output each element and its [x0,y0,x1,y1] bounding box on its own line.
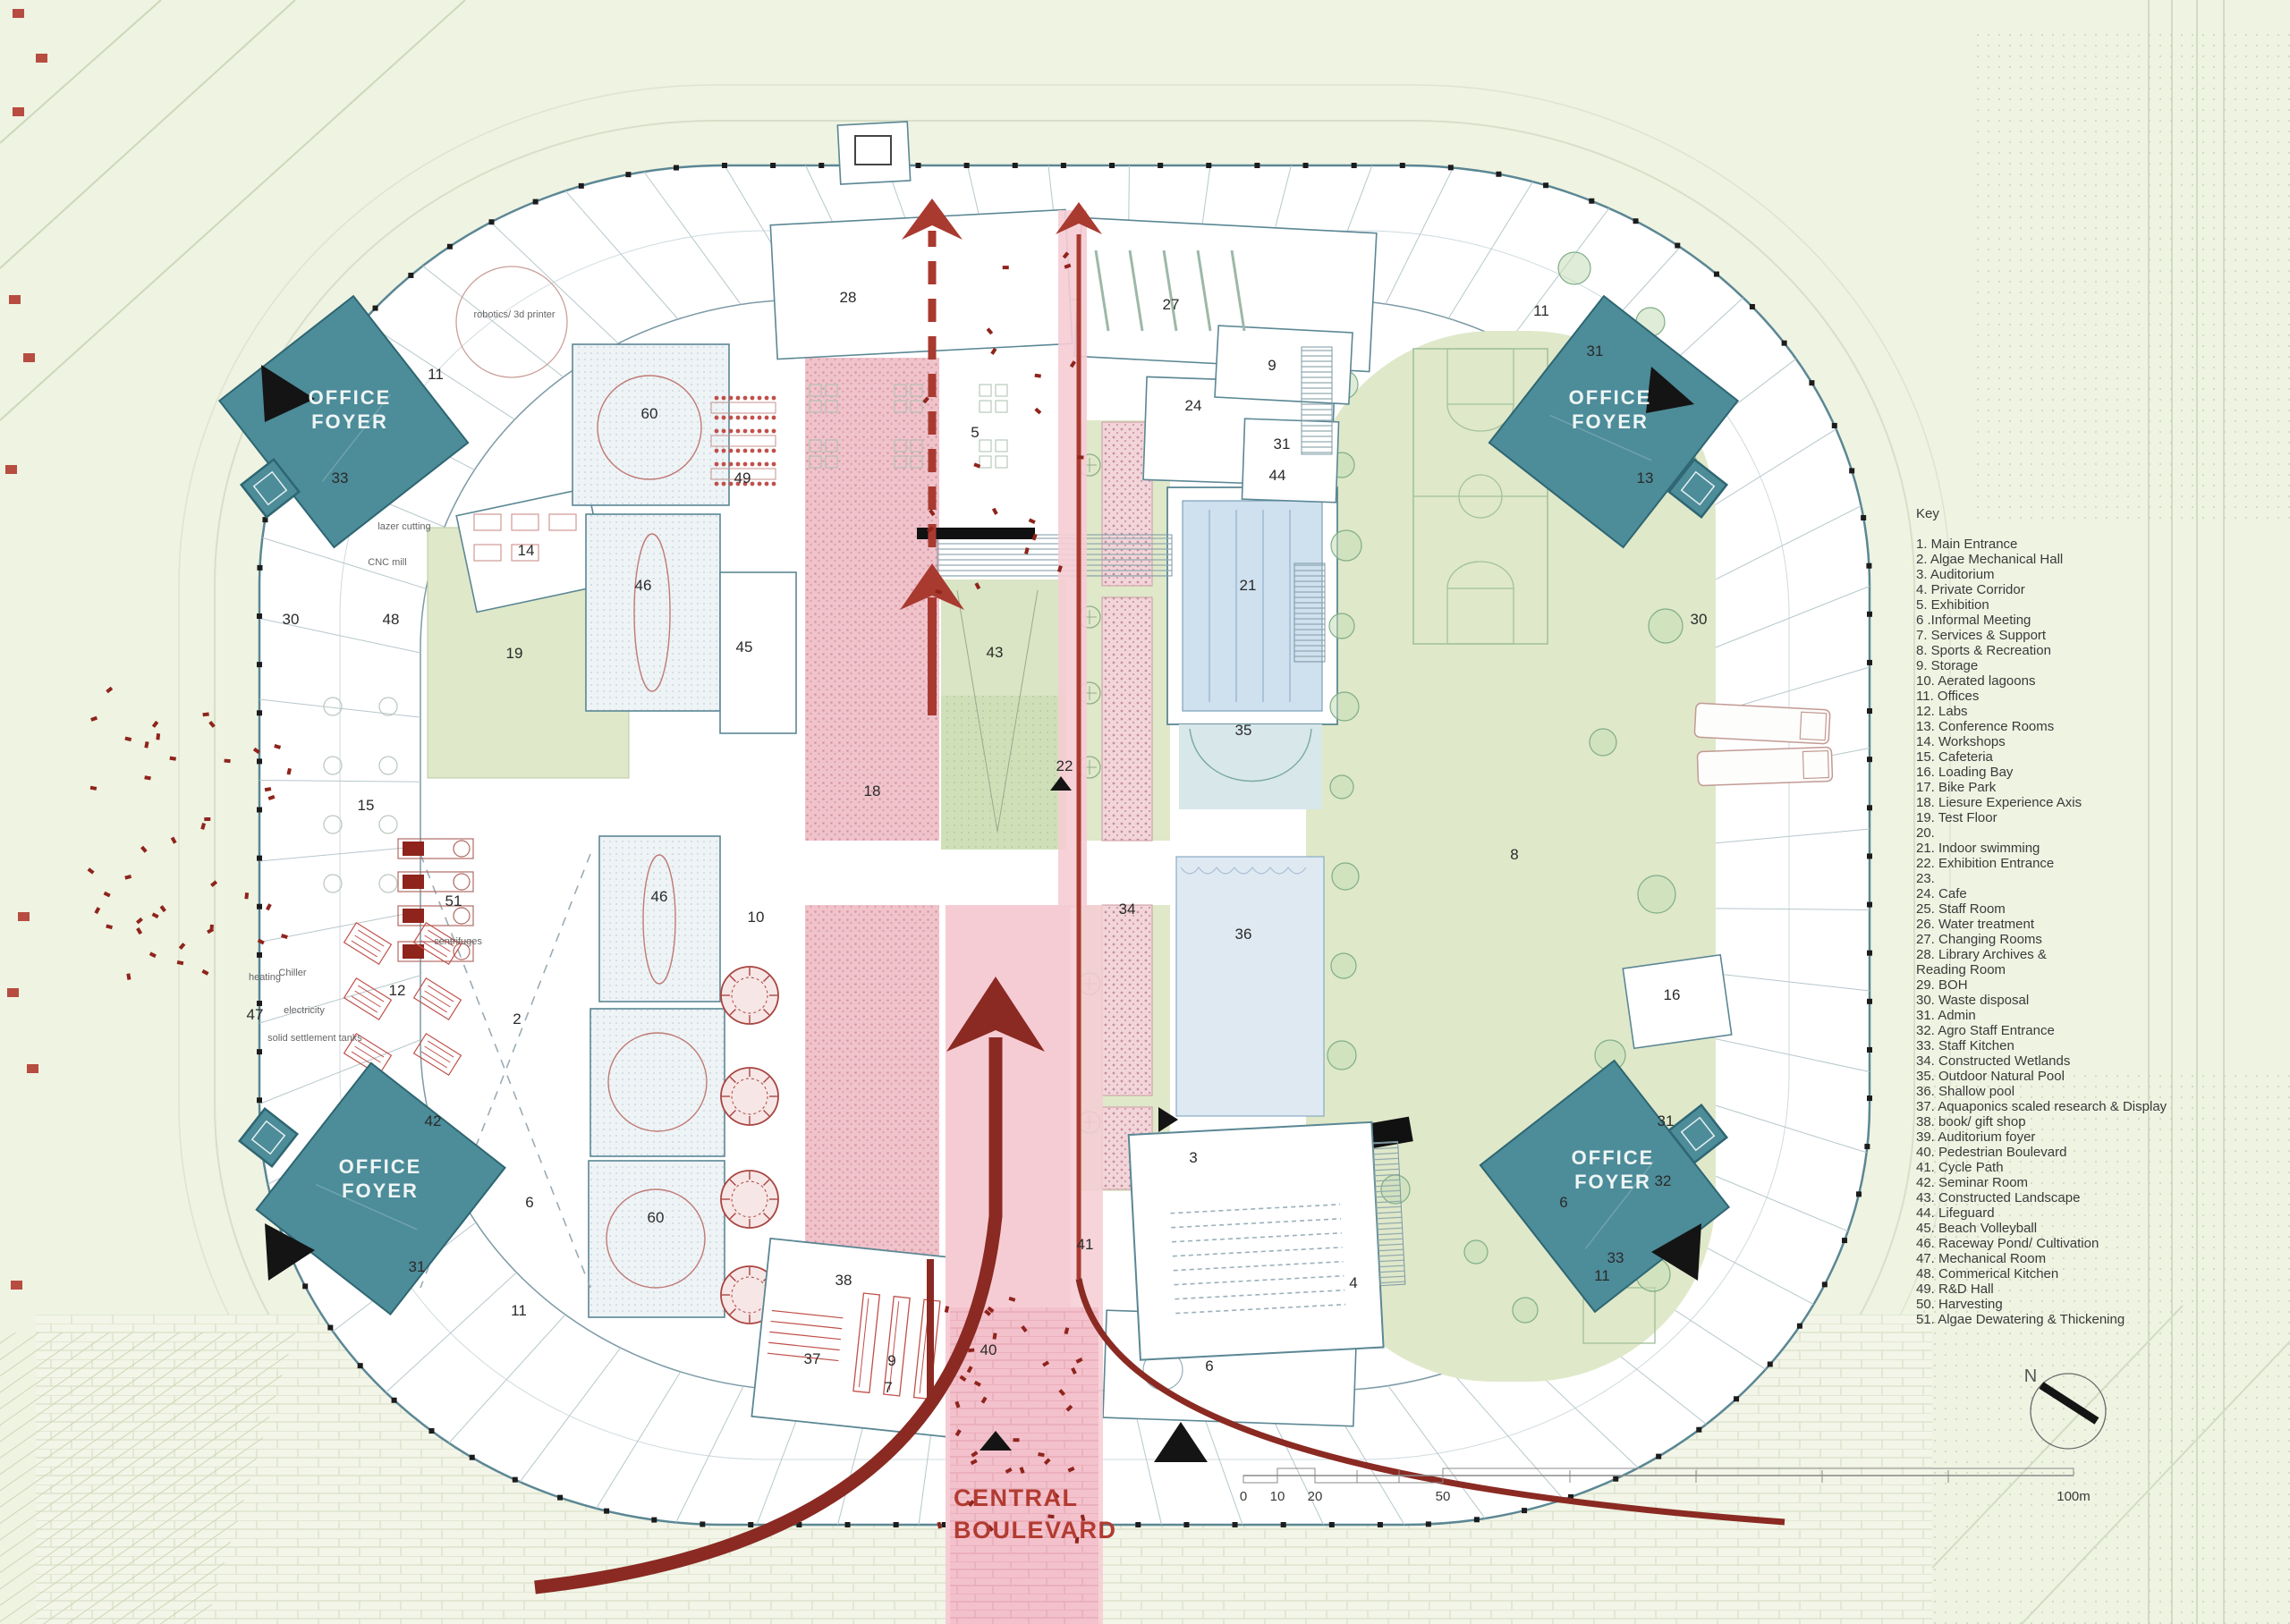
central-boulevard-label: BOULEVARD [954,1517,1117,1544]
plan-label: 16 [1664,986,1681,1003]
legend-item: 8. Sports & Recreation [1916,643,2220,658]
legend-item: 36. Shallow pool [1916,1084,2220,1099]
legend-item: 41. Cycle Path [1916,1160,2220,1175]
legend-item: 37. Aquaponics scaled research & Display [1916,1099,2220,1114]
plan-label: 31 [409,1258,426,1275]
scale-tick-label: 50 [1436,1489,1451,1504]
plan-label: 41 [1077,1236,1094,1253]
legend-item: 2. Algae Mechanical Hall [1916,552,2220,567]
plan-label: 10 [748,909,765,926]
scale-tick-label: 100m [2057,1489,2091,1504]
plan-label: CNC mill [368,557,406,568]
plan-label: 33 [1607,1249,1624,1266]
legend-item: 45. Beach Volleyball [1916,1221,2220,1236]
legend-item: 42. Seminar Room [1916,1175,2220,1190]
plan-label: 11 [511,1302,527,1319]
legend-item: 12. Labs [1916,704,2220,719]
legend-item: 48. Commerical Kitchen [1916,1266,2220,1281]
plan-label: 27 [1163,296,1180,313]
plan-label: 36 [1235,926,1252,943]
zone-landscape [941,579,1066,696]
legend-item: 35. Outdoor Natural Pool [1916,1069,2220,1084]
plan-label: 6 [1205,1358,1213,1374]
plan-label: 37 [804,1350,821,1367]
plan-label: 38 [835,1272,852,1289]
legend-item: 31. Admin [1916,1008,2220,1023]
office-foyer-label: FOYER [311,410,388,433]
legend-item: 34. Constructed Wetlands [1916,1053,2220,1069]
legend-list: 1. Main Entrance2. Algae Mechanical Hall… [1916,537,2220,1327]
north-label: N [2024,1366,2037,1386]
legend-item: 6 .Informal Meeting [1916,613,2220,628]
plan-label: 28 [840,289,857,306]
plan-label: 4 [1349,1274,1357,1291]
legend-item: 28. Library Archives & Reading Room [1916,947,2220,977]
legend-item: 14. Workshops [1916,734,2220,749]
legend-item: 16. Loading Bay [1916,765,2220,780]
plan-label: 49 [734,469,751,486]
legend-item: 33. Staff Kitchen [1916,1038,2220,1053]
office-foyer-label: OFFICE [309,386,392,409]
zone-wetlands [1102,905,1152,1095]
legend-item: 21. Indoor swimming [1916,841,2220,856]
plan-label: 11 [1594,1267,1610,1284]
plan-label: 11 [1533,302,1549,319]
plan-label: robotics/ 3d printer [473,309,555,320]
plan-label: 31 [1274,436,1291,453]
zone-wetlands [1102,597,1152,841]
legend-item: 49. R&D Hall [1916,1281,2220,1297]
office-foyer-label: FOYER [1572,410,1649,433]
plan-label: 2 [513,1011,521,1028]
pool-shallow [1176,857,1324,1116]
legend-item: 9. Storage [1916,658,2220,673]
legend-item: 23. [1916,871,2220,886]
context-building-marker [36,54,47,63]
legend-item: 7. Services & Support [1916,628,2220,643]
plan-label: solid settlement tanks [267,1033,362,1044]
plan-label: 12 [389,982,406,999]
office-foyer-label: OFFICE [1569,386,1652,409]
truck-icon [1697,747,1832,785]
plan-label: lazer cutting [377,521,430,532]
context-building-marker [11,1281,22,1290]
context-building-marker [13,9,24,18]
central-boulevard-label: CENTRAL [954,1484,1079,1511]
legend-item: 32. Agro Staff Entrance [1916,1023,2220,1038]
scale-tick-label: 20 [1308,1489,1323,1504]
office-foyer-label: FOYER [1574,1171,1651,1193]
legend-item: 4. Private Corridor [1916,582,2220,597]
plan-label: 9 [887,1352,895,1369]
legend-item: 44. Lifeguard [1916,1205,2220,1221]
legend-item: 20. [1916,825,2220,841]
context-building-marker [9,295,21,304]
legend-item: 13. Conference Rooms [1916,719,2220,734]
plan-label: 33 [332,469,349,486]
plan-label: 48 [383,611,400,628]
truck-icon [1694,703,1830,744]
legend-title: Key [1916,506,2220,521]
plan-label: 43 [987,644,1004,661]
plan-label: 21 [1240,577,1257,594]
office-foyer-label: OFFICE [339,1155,422,1178]
legend-item: 47. Mechanical Room [1916,1251,2220,1266]
legend-item: 38. book/ gift shop [1916,1114,2220,1129]
legend-item: 10. Aerated lagoons [1916,673,2220,689]
plan-label: 9 [1268,357,1276,374]
plan-label: centrifuges [434,936,482,947]
legend-item: 29. BOH [1916,977,2220,993]
plan-label: 6 [1559,1194,1567,1211]
context-building-marker [18,912,30,921]
plan-label: 14 [518,542,535,559]
plan-label: Chiller [278,968,307,978]
plan-label: 34 [1119,901,1136,918]
context-building-marker [5,465,17,474]
context-building-marker [7,988,19,997]
plan-label: 60 [641,405,658,422]
plan-label: 18 [864,782,881,799]
office-foyer-label: FOYER [342,1180,419,1202]
legend-item: 1. Main Entrance [1916,537,2220,552]
plan-label: 22 [1056,757,1073,774]
scale-tick-label: 10 [1270,1489,1285,1504]
legend-item: 19. Test Floor [1916,810,2220,825]
plan-label: 35 [1235,722,1252,739]
plan-label: 42 [425,1112,442,1129]
context-building-marker [23,353,35,362]
legend-item: 11. Offices [1916,689,2220,704]
legend-item: 25. Staff Room [1916,901,2220,917]
legend-item: 51. Algae Dewatering & Thickening [1916,1312,2220,1327]
legend-item: 5. Exhibition [1916,597,2220,613]
legend-item: 39. Auditorium foyer [1916,1129,2220,1145]
legend-item: 30. Waste disposal [1916,993,2220,1008]
legend-item: 15. Cafeteria [1916,749,2220,765]
plan-label: 15 [358,797,375,814]
legend-item: 26. Water treatment [1916,917,2220,932]
plan-label: 45 [736,639,753,656]
office-foyer-label: OFFICE [1572,1146,1655,1169]
plan-label: 24 [1185,397,1202,414]
legend-item: 17. Bike Park [1916,780,2220,795]
legend-item: 40. Pedestrian Boulevard [1916,1145,2220,1160]
plan-label: electricity [284,1005,325,1016]
plan-label: 32 [1655,1172,1672,1189]
plan-label: 6 [525,1194,533,1211]
legend-item: 18. Liesure Experience Axis [1916,795,2220,810]
legend-item: 3. Auditorium [1916,567,2220,582]
plan-label: 8 [1510,846,1518,863]
plan-label: 47 [247,1006,264,1023]
plan-label: 31 [1587,343,1604,359]
plan-label: 3 [1189,1149,1197,1166]
plan-label: 46 [635,577,652,594]
context-building-marker [13,107,24,116]
plan-label: 5 [971,424,979,441]
plan-label: heating [249,972,281,983]
plan-label: 13 [1637,469,1654,486]
plan-label: 7 [884,1379,892,1396]
plan-label: 60 [648,1209,665,1226]
legend-item: 50. Harvesting [1916,1297,2220,1312]
legend-item: 22. Exhibition Entrance [1916,856,2220,871]
legend: Key 1. Main Entrance2. Algae Mechanical … [1916,506,2220,1327]
plan-label: 30 [1691,611,1708,628]
auditorium [1129,1121,1409,1359]
legend-item: 27. Changing Rooms [1916,932,2220,947]
legend-item: 24. Cafe [1916,886,2220,901]
plan-label: 44 [1269,467,1286,484]
plan-label: 19 [506,645,523,662]
floor-plan-page: { "legend": { "title": "Key", "items": [… [0,0,2290,1624]
plan-label: 40 [980,1341,997,1358]
plan-label: 31 [1658,1112,1675,1129]
plan-label: 51 [445,892,462,909]
legend-item: 43. Constructed Landscape [1916,1190,2220,1205]
context-building-marker [27,1064,38,1073]
plan-label: 30 [283,611,300,628]
scale-tick-label: 0 [1240,1489,1247,1504]
plan-label: 46 [651,888,668,905]
plan-label: 11 [428,366,444,383]
legend-item: 46. Raceway Pond/ Cultivation [1916,1236,2220,1251]
